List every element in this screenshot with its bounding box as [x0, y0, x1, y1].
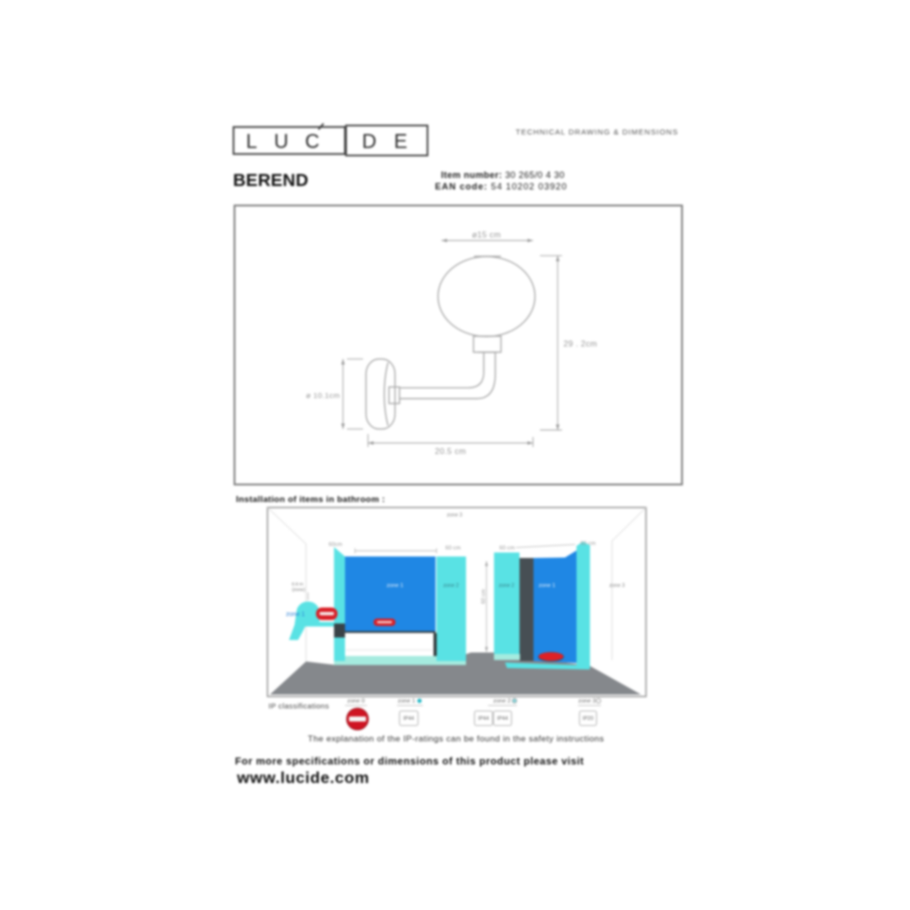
svg-text:BEREND: BEREND [233, 170, 309, 190]
svg-text:zone 3: zone 3 [447, 513, 463, 519]
svg-text:zone 1: zone 1 [539, 583, 556, 589]
svg-text:TECHNICAL DRAWING & DIMENSIONS: TECHNICAL DRAWING & DIMENSIONS [516, 128, 679, 137]
svg-text:zone 1: zone 1 [286, 611, 305, 618]
svg-text:zone 2: zone 2 [499, 583, 515, 589]
svg-text:L: L [246, 131, 257, 153]
svg-text:(zone): (zone) [292, 587, 305, 592]
svg-text:ø 10.1cm: ø 10.1cm [306, 391, 340, 400]
svg-text:60 cm: 60 cm [481, 589, 487, 604]
svg-text:IP classifications: IP classifications [269, 702, 330, 711]
svg-text:60 cm: 60 cm [499, 546, 515, 552]
svg-text:EAN code: 54 10202 03920: EAN code: 54 10202 03920 [435, 182, 567, 192]
svg-text:ø15 cm: ø15 cm [472, 231, 501, 240]
svg-text:www.lucide.com: www.lucide.com [236, 770, 369, 787]
svg-text:For more specifications or dim: For more specifications or dimensions of… [235, 757, 584, 768]
svg-text:29 . 2cm: 29 . 2cm [564, 340, 598, 349]
svg-text:IP44: IP44 [478, 716, 489, 722]
svg-text:zone 3: zone 3 [609, 583, 625, 589]
svg-text:60 cm: 60 cm [445, 546, 461, 552]
svg-text:zone 2: zone 2 [493, 699, 510, 705]
svg-text:zone 1: zone 1 [387, 583, 404, 589]
svg-text:C: C [305, 131, 319, 153]
svg-text:D: D [362, 131, 376, 153]
svg-text:IP44: IP44 [403, 716, 414, 722]
svg-text:20.5 cm: 20.5 cm [435, 447, 466, 456]
svg-text:zone 2: zone 2 [443, 583, 459, 589]
svg-text:E: E [394, 131, 407, 153]
svg-text:Item number: 30 265/0 4 30: Item number: 30 265/0 4 30 [441, 170, 565, 180]
svg-text:The explanation of the IP-rati: The explanation of the IP-ratings can be… [308, 734, 604, 744]
svg-text:0.6 m: 0.6 m [292, 582, 304, 587]
svg-text:zone 1: zone 1 [398, 699, 415, 705]
svg-text:zone 3: zone 3 [578, 699, 595, 705]
svg-text:U: U [274, 131, 288, 153]
svg-text:60cm: 60cm [329, 542, 343, 548]
svg-text:Installation of items in bathr: Installation of items in bathroom : [236, 494, 385, 504]
svg-text:IP44: IP44 [497, 716, 508, 722]
svg-text:IP20: IP20 [583, 716, 594, 722]
svg-text:zone 0: zone 0 [347, 699, 364, 705]
svg-text:60 cm: 60 cm [580, 541, 596, 547]
